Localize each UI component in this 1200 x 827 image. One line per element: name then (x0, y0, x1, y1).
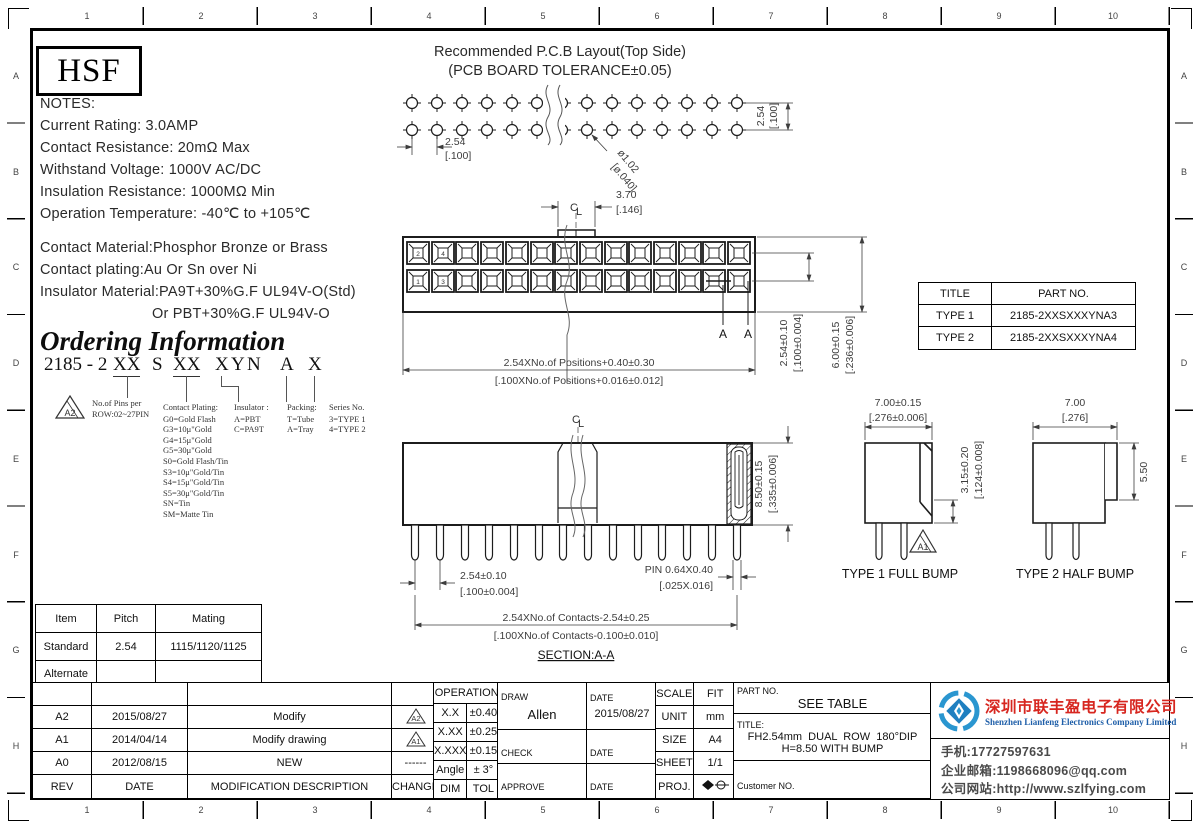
ruler-label: F (7, 507, 25, 603)
company-website[interactable]: 公司网站:http://www.szlfying.com (941, 780, 1169, 799)
legend-line: 4=TYPE 2 (329, 424, 366, 435)
legend-title: Insulator : (234, 402, 269, 413)
ordering-series-legend: Series No. 3=TYPE 1 4=TYPE 2 (329, 402, 366, 435)
section-body (403, 443, 752, 525)
part-table-header: TITLE (919, 283, 992, 305)
section-height-dim-in: [.335±0.006] (767, 455, 779, 513)
legend-title: Series No. (329, 402, 366, 413)
revision-header: MODIFICATION DESCRIPTION (188, 775, 392, 799)
ruler-label: 1 (30, 7, 144, 25)
tolerance-dim: Angle (434, 761, 467, 780)
tolerance-title: OPERATION (434, 683, 500, 704)
tolerance-val: ±0.25 (467, 723, 500, 742)
revision-flag-text: A1 (411, 737, 420, 746)
tolerance-table: OPERATION X.X±0.40 X.XX±0.25 X.XXX±0.15 … (433, 682, 500, 799)
ruler-label: A (7, 28, 25, 124)
legend-line: G0=Gold Flash (163, 414, 228, 425)
legend-line: No.of Pins per (92, 398, 149, 409)
section-contact-cavity (727, 444, 751, 524)
revision-flag-a2-icon: A2 (53, 393, 87, 421)
mating-cell: 1115/1120/1125 (156, 633, 262, 661)
ruler-label: G (1175, 603, 1193, 699)
note-line: Withstand Voltage: 1000V AC/DC (40, 162, 261, 178)
part-table-cell: 2185-2XXSXXXYNA3 (992, 305, 1136, 327)
legend-line: 3=TYPE 1 (329, 414, 366, 425)
ruler-label: 8 (828, 801, 942, 819)
legend-line: ROW:02~27PIN (92, 409, 149, 420)
ruler-label: H (1175, 698, 1193, 794)
ruler-label: 7 (714, 801, 828, 819)
approve-label: APPROVE (501, 782, 545, 792)
part-number-pins: XX (113, 354, 140, 377)
tolerance-val: ±0.40 (467, 704, 500, 723)
pcb-pitch-dim-mm: 2.54 (445, 136, 466, 148)
mating-header: Pitch (97, 605, 156, 633)
approval-table: DRAWAllen DATE2015/08/27 CHECK DATE APPR… (497, 682, 658, 799)
proj-value (693, 775, 737, 799)
tolerance-dim: X.XX (434, 723, 467, 742)
legend-title: Contact Plating: (163, 402, 228, 413)
front-height-dim-in: [.236±0.006] (844, 316, 856, 374)
revision-flag-a1-icon: A1 (910, 530, 936, 552)
ruler-label: 9 (942, 7, 1056, 25)
part-table-cell: 2185-2XXSXXXYNA4 (992, 327, 1136, 350)
size-value: A4 (693, 729, 737, 752)
centerline-l: L (578, 418, 584, 430)
revision-flag-a1-icon: A1 (404, 730, 428, 748)
part-number-table: TITLE PART NO. TYPE 1 2185-2XXSXXXYNA3 T… (918, 282, 1136, 350)
revision-date: 2014/04/14 (92, 729, 188, 752)
type1-view-drawing: 7.00±0.15 [.276±0.006] 3.15±0.20 [.124±0… (830, 390, 1015, 595)
date-label: DATE (590, 748, 613, 758)
revision-date: 2015/08/27 (92, 706, 188, 729)
mating-header: Item (36, 605, 97, 633)
tolerance-val: TOL (467, 780, 500, 799)
front-pin-number: 1 (416, 279, 420, 286)
partno-label: PART NO. (737, 686, 779, 696)
note-line: Insulation Resistance: 1000MΩ Min (40, 184, 275, 200)
hsf-logo-text: HSF (57, 53, 121, 90)
legend-title: Packing: (287, 402, 317, 413)
ruler-label: 2 (144, 7, 258, 25)
section-mark-a: A (744, 327, 752, 341)
note-line: Contact plating:Au Or Sn over Ni (40, 262, 257, 278)
revision-flag-text: A2 (411, 714, 420, 723)
frame-corner (1171, 800, 1192, 821)
check-label: CHECK (501, 748, 533, 758)
ruler-label: 2 (144, 801, 258, 819)
ruler-label: 4 (372, 7, 486, 25)
front-width-dim-in: [.100XNo.of Positions+0.016±0.012] (495, 375, 663, 387)
section-pitch-dim-mm: 2.54±0.10 (460, 570, 507, 582)
legend-line: S5=30μ"Gold/Tin (163, 488, 228, 499)
pcb-layout-drawing: 2.54 [.100] ø1.02 [ø.040] 2.54 [.100] (395, 83, 810, 193)
note-line: Current Rating: 3.0AMP (40, 118, 198, 134)
ruler-label: 5 (486, 801, 600, 819)
type2-label: TYPE 2 HALF BUMP (1016, 567, 1134, 581)
ruler-label: 1 (30, 801, 144, 819)
tolerance-dim: DIM (434, 780, 467, 799)
note-line: Or PBT+30%G.F UL94V-O (152, 306, 330, 322)
type2-bump-dim: 5.50 (1138, 462, 1150, 483)
revision-desc: NEW (188, 752, 392, 775)
ordering-packing-legend: Packing: T=Tube A=Tray (287, 402, 317, 435)
note-line: Contact Material:Phosphor Bronze or Bras… (40, 240, 328, 256)
legend-line: T=Tube (287, 414, 317, 425)
ruler-label: B (1175, 124, 1193, 220)
revision-rev: A0 (33, 752, 92, 775)
company-phone: 手机:17727597631 (941, 743, 1169, 762)
revision-header: DATE (92, 775, 188, 799)
type2-width-dim-in: [.276] (1062, 412, 1088, 424)
legend-line: C=PA9T (234, 424, 269, 435)
pcb-row-dim-in: [.100] (768, 103, 780, 129)
mating-table: Item Pitch Mating Standard 2.54 1115/112… (35, 604, 262, 688)
leader-line (127, 376, 128, 398)
note-line: Contact Resistance: 20mΩ Max (40, 140, 250, 156)
frame-corner (1171, 8, 1192, 29)
leader-line (286, 376, 287, 402)
type2-body (1033, 443, 1117, 560)
legend-line: G3=10μ"Gold (163, 424, 228, 435)
tolerance-dim: X.XXX (434, 742, 467, 761)
leader-line (186, 376, 187, 402)
section-pitch-dim-in: [.100±0.004] (460, 586, 518, 598)
pcb-layout-title: Recommended P.C.B Layout(Top Side) (405, 44, 715, 60)
note-line: Operation Temperature: -40℃ to +105℃ (40, 206, 310, 222)
projection-icon (700, 779, 730, 791)
pcb-layout-subtitle: (PCB BOARD TOLERANCE±0.05) (405, 63, 715, 79)
meta-table: SCALEFIT UNITmm SIZEA4 SHEET1/1 PROJ. (655, 682, 738, 799)
sheet-value: 1/1 (693, 752, 737, 775)
revision-rev: A1 (33, 729, 92, 752)
ruler-label: 3 (258, 7, 372, 25)
front-height-dim-mm: 6.00±0.15 (830, 322, 842, 369)
front-row-dim-in: [.100±0.004] (792, 314, 804, 372)
type1-bump-dim-mm: 3.15±0.20 (959, 447, 971, 494)
company-contact: 手机:17727597631 企业邮箱:1198668096@qq.com 公司… (931, 739, 1169, 799)
company-name-cn: 深圳市联丰盈电子有限公司 (985, 695, 1177, 717)
section-pins (412, 525, 741, 560)
ruler-label: 10 (1056, 801, 1170, 819)
section-span-dim-mm: 2.54XNo.of Contacts-2.54±0.25 (502, 612, 649, 624)
type1-width-dim-mm: 7.00±0.15 (875, 397, 922, 409)
ruler-label: 4 (372, 801, 486, 819)
section-label: SECTION:A-A (538, 648, 615, 662)
ruler-label: 9 (942, 801, 1056, 819)
pcb-holes-row1 (403, 94, 746, 112)
hsf-logo: HSF (36, 46, 142, 96)
mating-cell: Standard (36, 633, 97, 661)
part-number-a: A (280, 354, 294, 376)
revision-header: REV (33, 775, 92, 799)
scale-value: FIT (693, 683, 737, 706)
unit-value: mm (693, 706, 737, 729)
sheet-label: SHEET (656, 752, 694, 775)
type1-width-dim-in: [.276±0.006] (869, 412, 927, 424)
front-tab-dim-in: [.146] (616, 204, 642, 216)
ruler-label: H (7, 698, 25, 794)
revision-rev: A2 (33, 706, 92, 729)
part-number-plating: XX (173, 354, 200, 377)
mating-cell: 2.54 (97, 633, 156, 661)
ruler-bottom: 12345678910 (30, 801, 1170, 819)
section-mark-a: A (719, 327, 727, 341)
date-label: DATE (590, 782, 613, 792)
revision-flag-a2-icon: A2 (404, 707, 428, 725)
revision-flag-text: A2 (64, 408, 75, 418)
part-table-header: PART NO. (992, 283, 1136, 305)
ruler-label: A (1175, 28, 1193, 124)
ruler-label: G (7, 603, 25, 699)
company-name-en: Shenzhen Lianfeng Electronics Company Li… (985, 717, 1177, 727)
front-tab-dim-mm: 3.70 (616, 189, 637, 201)
ruler-label: B (7, 124, 25, 220)
ruler-label: 6 (600, 7, 714, 25)
company-header: 深圳市联丰盈电子有限公司 Shenzhen Lianfeng Electroni… (931, 683, 1169, 739)
scale-label: SCALE (656, 683, 694, 706)
part-info-table: PART NO.SEE TABLE TITLE: FH2.54mm DUAL R… (733, 682, 932, 799)
ruler-label: D (7, 315, 25, 411)
company-logo-icon (937, 689, 981, 733)
section-pin-dim-in: [.025X.016] (659, 580, 713, 592)
drawing-title-line2: H=8.50 WITH BUMP (734, 743, 931, 755)
type2-view-drawing: 7.00 [.276] 5.50 TYPE 2 HALF BUMP (1005, 390, 1180, 595)
legend-line: G5=30μ"Gold (163, 445, 228, 456)
leader-line (221, 386, 238, 387)
company-block: 深圳市联丰盈电子有限公司 Shenzhen Lianfeng Electroni… (930, 682, 1170, 800)
front-row-dim-mm: 2.54±0.10 (778, 320, 790, 367)
proj-label: PROJ. (656, 775, 694, 799)
legend-line: G4=15μ"Gold (163, 435, 228, 446)
leader-line (314, 376, 315, 402)
ruler-label: 10 (1056, 7, 1170, 25)
ruler-left: ABCDEFGH (7, 28, 25, 794)
tolerance-dim: X.X (434, 704, 467, 723)
unit-label: UNIT (656, 706, 694, 729)
part-number-x: X (215, 354, 229, 376)
ruler-top: 12345678910 (30, 7, 1170, 25)
legend-line: A=PBT (234, 414, 269, 425)
tolerance-val: ±0.15 (467, 742, 500, 761)
front-pin-number: 4 (441, 251, 445, 258)
front-pin-number: 3 (441, 279, 445, 286)
ordering-title: Ordering Information (40, 326, 285, 357)
title-block: A2 2015/08/27 Modify A2 A1 2014/04/14 Mo… (32, 682, 1168, 798)
ordering-pins-note: No.of Pins per ROW:02~27PIN (92, 398, 149, 419)
size-label: SIZE (656, 729, 694, 752)
part-number-s: S (152, 354, 163, 376)
part-number-n: N (247, 354, 261, 376)
revision-desc: Modify drawing (188, 729, 392, 752)
centerline-l: L (576, 206, 582, 218)
section-view-drawing: C L 8.50±0.15 [.335±0.006] 2.54±0.10 [.1… (395, 405, 795, 675)
type1-label: TYPE 1 FULL BUMP (842, 567, 958, 581)
pcb-row-dim-mm: 2.54 (755, 106, 767, 127)
ruler-label: E (7, 411, 25, 507)
front-pin-number: 2 (416, 251, 420, 258)
revision-flag-text: A1 (917, 542, 928, 552)
title-label: TITLE: (737, 720, 764, 730)
ordering-insulator-legend: Insulator : A=PBT C=PA9T (234, 402, 269, 435)
legend-line: SM=Matte Tin (163, 509, 228, 520)
front-width-dim-mm: 2.54XNo.of Positions+0.40±0.30 (504, 357, 655, 369)
ruler-label: 3 (258, 801, 372, 819)
tolerance-val: ± 3° (467, 761, 500, 780)
legend-line: SN=Tin (163, 498, 228, 509)
ordering-plating-legend: Contact Plating: G0=Gold Flash G3=10μ"Go… (163, 402, 228, 520)
type2-width-dim-mm: 7.00 (1065, 397, 1086, 409)
mating-header: Mating (156, 605, 262, 633)
legend-line: S0=Gold Flash/Tin (163, 456, 228, 467)
part-number-series: X (308, 354, 322, 376)
part-number-y: Y (231, 354, 245, 376)
part-number-prefix: 2185 - 2 (44, 354, 107, 376)
pcb-break-lines (543, 85, 565, 145)
revision-date: 2012/08/15 (92, 752, 188, 775)
ruler-label: C (7, 220, 25, 316)
company-email: 企业邮箱:1198668096@qq.com (941, 762, 1169, 781)
pcb-pitch-dim-in: [.100] (445, 150, 471, 162)
legend-line: S3=10μ"Gold/Tin (163, 467, 228, 478)
customer-label: Customer NO. (737, 781, 795, 791)
date-label: DATE (590, 693, 613, 703)
ruler-label: 5 (486, 7, 600, 25)
ruler-label: 8 (828, 7, 942, 25)
ruler-label: 7 (714, 7, 828, 25)
part-table-cell: TYPE 1 (919, 305, 992, 327)
drawing-sheet: 12345678910 12345678910 ABCDEFGH ABCDEFG… (0, 0, 1200, 827)
ruler-label: C (1175, 220, 1193, 316)
frame-corner (8, 8, 29, 29)
type1-bump-dim-in: [.124±0.008] (973, 441, 985, 499)
draw-label: DRAW (501, 692, 528, 702)
section-height-dim-mm: 8.50±0.15 (753, 461, 765, 508)
revision-desc: Modify (188, 706, 392, 729)
part-table-cell: TYPE 2 (919, 327, 992, 350)
note-line: Insulator Material:PA9T+30%G.F UL94V-O(S… (40, 284, 356, 300)
leader-line (238, 386, 239, 402)
legend-line: A=Tray (287, 424, 317, 435)
ruler-label: 6 (600, 801, 714, 819)
notes-title: NOTES: (40, 96, 95, 112)
revision-table: A2 2015/08/27 Modify A2 A1 2014/04/14 Mo… (32, 682, 440, 799)
section-pin-dim-mm: PIN 0.64X0.40 (645, 564, 713, 576)
front-view-drawing: 2 4 1 3 C L 3.70 [.146] 2.54XNo.of Posit… (395, 185, 870, 400)
frame-corner (8, 800, 29, 821)
legend-line: S4=15μ"Gold/Tin (163, 477, 228, 488)
section-span-dim-in: [.100XNo.of Contacts-0.100±0.010] (494, 630, 659, 642)
centerline-icon: C L (570, 202, 582, 230)
leader-line (221, 376, 222, 386)
